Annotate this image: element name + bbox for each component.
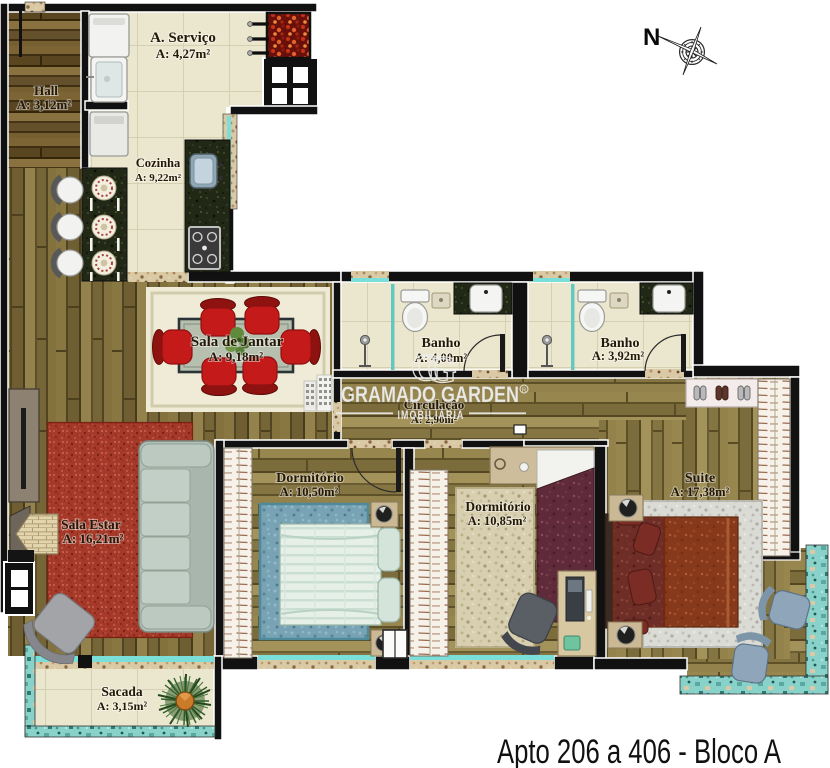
svg-text:A: 16,21m²: A: 16,21m² xyxy=(63,531,124,546)
svg-text:A: 10,50m²: A: 10,50m² xyxy=(280,485,339,499)
svg-text:A: 17,38m²: A: 17,38m² xyxy=(671,485,730,499)
svg-text:R: R xyxy=(522,388,527,394)
svg-text:A: 3,12m²: A: 3,12m² xyxy=(17,97,72,112)
svg-text:Sala de Jantar: Sala de Jantar xyxy=(191,334,284,350)
svg-text:Apto 206 a 406 - Bloco A: Apto 206 a 406 - Bloco A xyxy=(497,733,781,768)
svg-text:Sala Estar: Sala Estar xyxy=(61,517,121,532)
svg-text:A: 4,27m²: A: 4,27m² xyxy=(156,46,211,61)
svg-text:A: 9,22m²: A: 9,22m² xyxy=(135,172,182,184)
svg-text:GRAMADO GARDEN: GRAMADO GARDEN xyxy=(341,382,519,407)
svg-text:Cozinha: Cozinha xyxy=(136,156,181,170)
svg-text:Suite: Suite xyxy=(685,471,715,486)
svg-text:IMOBILIÁRIA: IMOBILIÁRIA xyxy=(398,407,465,422)
svg-text:Hall: Hall xyxy=(34,83,58,98)
svg-text:A: 3,15m²: A: 3,15m² xyxy=(97,699,148,713)
svg-text:Dormitório: Dormitório xyxy=(465,499,530,514)
svg-text:N: N xyxy=(643,24,660,51)
svg-text:A: 9,18m²: A: 9,18m² xyxy=(209,349,264,364)
svg-text:A: 3,92m²: A: 3,92m² xyxy=(592,349,645,363)
svg-text:Sacada: Sacada xyxy=(101,684,143,699)
svg-text:Dormitório: Dormitório xyxy=(276,471,344,486)
svg-text:A: 10,85m²: A: 10,85m² xyxy=(468,514,527,528)
svg-text:A. Serviço: A. Serviço xyxy=(150,30,216,46)
